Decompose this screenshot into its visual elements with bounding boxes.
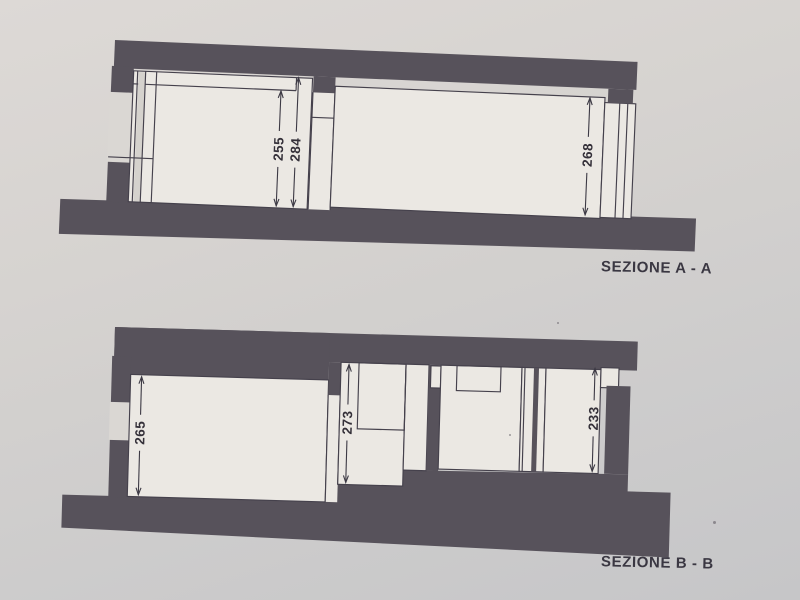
partition-beam-b (328, 362, 341, 395)
dim-255-text: 255 (271, 137, 287, 162)
dust-speck (713, 521, 716, 524)
photo-background: 255 284 268 (0, 0, 800, 600)
mid-wall-opening-b (430, 366, 441, 388)
dim-233-text: 233 (586, 406, 602, 430)
room-b-3 (438, 365, 522, 471)
section-b-drawing: 265 273 233 (58, 326, 709, 579)
dust-speck (509, 434, 511, 436)
partition-beam-a (313, 76, 336, 93)
dim-265-text: 265 (132, 421, 148, 445)
room-b-1 (127, 374, 328, 501)
room-b-2-step (403, 364, 429, 471)
dim-268-text: 268 (580, 143, 596, 168)
room-a-right (330, 86, 605, 218)
section-a-title: SEZIONE A - A (601, 258, 771, 279)
section-a-drawing: 255 284 268 (56, 38, 709, 280)
dim-284-text: 284 (288, 137, 304, 162)
left-window-opening-b (109, 402, 131, 441)
dim-273-text: 273 (340, 410, 356, 434)
section-b-title: SEZIONE B - B (601, 553, 771, 574)
roof-slab-b-thick (114, 327, 330, 380)
roof-step-a (608, 89, 634, 104)
dust-speck (557, 322, 559, 324)
right-window-b (600, 368, 619, 388)
right-wall-b (604, 386, 630, 475)
